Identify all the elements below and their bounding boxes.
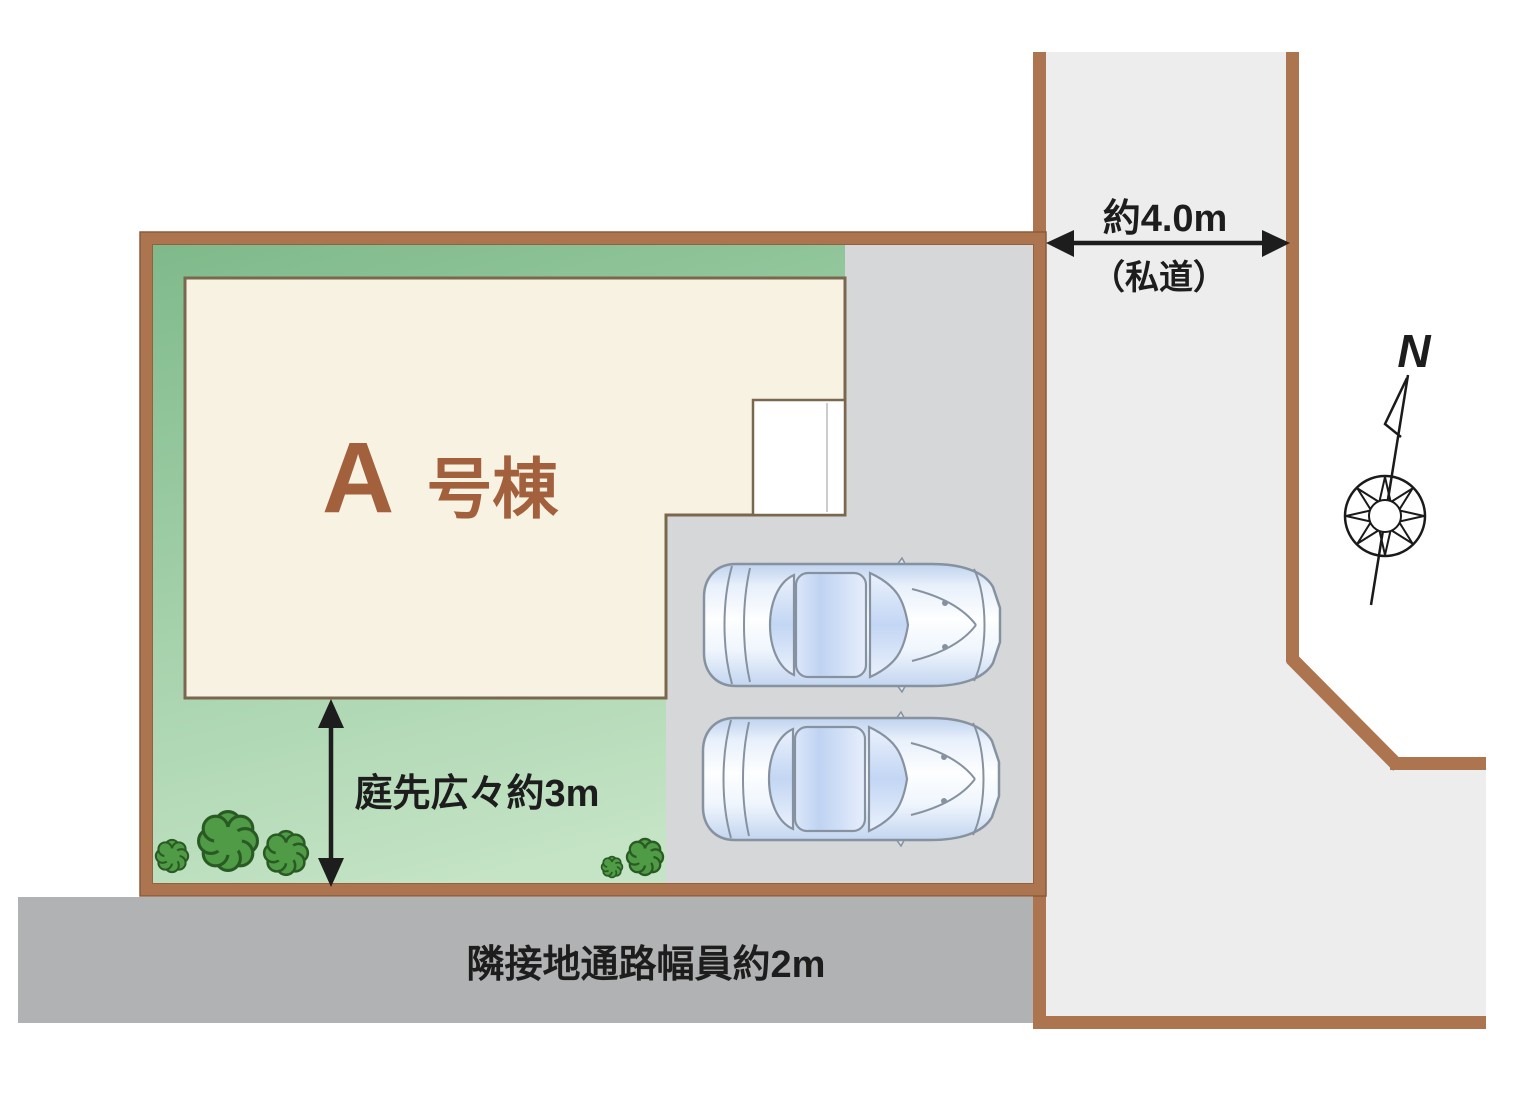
road-type-label: （私道） [1091, 258, 1227, 297]
tree [264, 831, 308, 875]
tree [627, 839, 663, 875]
road-width-label: 約4.0m [1103, 198, 1228, 240]
road-border-right [1286, 52, 1299, 662]
car-top-view-2 [703, 712, 999, 846]
road-border-ledge [1390, 757, 1486, 770]
site-plan-diagram: A 号棟 庭先広々約3m 隣接地通路幅員約2m 約4.0m （私道） N [0, 0, 1534, 1115]
road-border-bottom [1033, 1016, 1486, 1029]
tree [199, 812, 258, 871]
passage-label: 隣接地通路幅員約2m [467, 944, 826, 986]
compass-north-label: N [1397, 325, 1431, 377]
building-label-letter: A [322, 422, 392, 534]
car-top-view-1 [704, 558, 1000, 692]
entrance-porch [753, 400, 845, 515]
tree [602, 857, 623, 878]
garden-label: 庭先広々約3m [355, 772, 600, 815]
building-label-suffix: 号棟 [426, 452, 559, 526]
tree [156, 840, 188, 872]
compass-rose-inner [1369, 500, 1401, 532]
